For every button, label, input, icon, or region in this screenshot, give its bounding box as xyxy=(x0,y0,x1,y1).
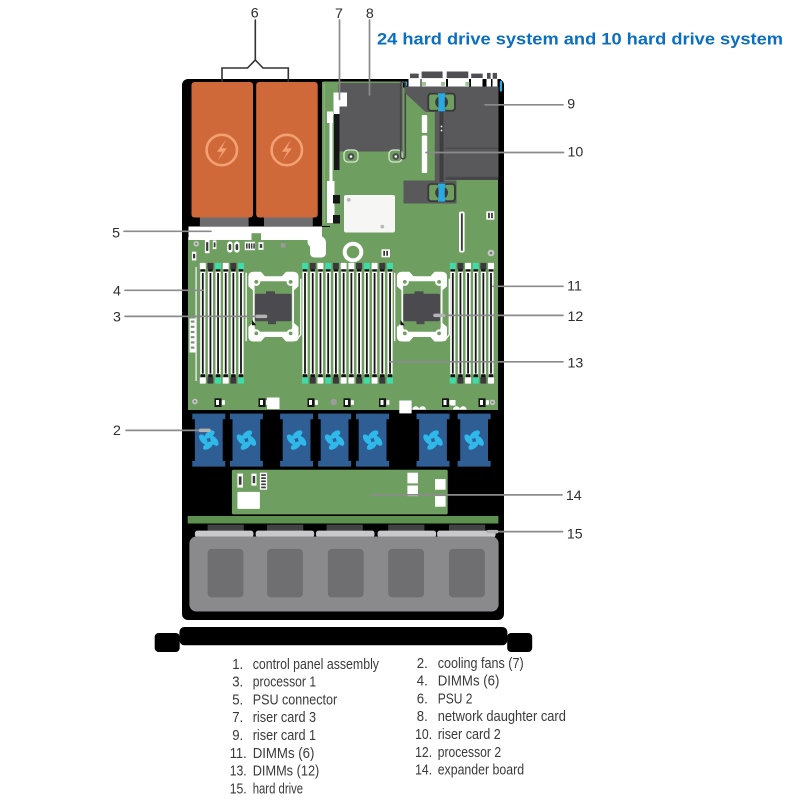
svg-text:9: 9 xyxy=(567,97,575,113)
svg-text:network daughter card: network daughter card xyxy=(438,708,566,725)
svg-text:4: 4 xyxy=(113,284,121,300)
svg-text:11: 11 xyxy=(567,279,582,295)
svg-text:5.: 5. xyxy=(232,691,243,708)
svg-text:cooling fans (7): cooling fans (7) xyxy=(438,655,524,672)
svg-text:processor 2: processor 2 xyxy=(438,744,501,761)
svg-text:DIMMs (6): DIMMs (6) xyxy=(438,673,500,690)
svg-text:riser card 2: riser card 2 xyxy=(438,726,501,743)
svg-text:expander board: expander board xyxy=(438,762,524,779)
svg-text:hard drive: hard drive xyxy=(253,780,303,797)
svg-text:6: 6 xyxy=(251,5,259,21)
svg-text:24 hard drive system and 10 ha: 24 hard drive system and 10 hard drive s… xyxy=(377,30,783,49)
svg-text:PSU connector: PSU connector xyxy=(253,691,338,708)
svg-text:14: 14 xyxy=(566,488,582,504)
svg-text:DIMMs (6): DIMMs (6) xyxy=(253,745,315,762)
svg-text:riser card 1: riser card 1 xyxy=(253,727,316,744)
svg-text:1.: 1. xyxy=(232,656,243,673)
svg-text:2: 2 xyxy=(113,423,121,439)
svg-text:12.: 12. xyxy=(415,744,432,761)
svg-text:5: 5 xyxy=(112,225,120,241)
svg-text:PSU 2: PSU 2 xyxy=(438,690,473,707)
svg-text:9.: 9. xyxy=(232,727,243,744)
svg-text:processor 1: processor 1 xyxy=(253,674,316,691)
svg-text:2.: 2. xyxy=(417,655,428,672)
svg-text:riser card 3: riser card 3 xyxy=(253,709,316,726)
svg-text:3: 3 xyxy=(113,309,121,325)
svg-text:12: 12 xyxy=(568,309,584,325)
svg-text:11.: 11. xyxy=(230,745,247,762)
svg-text:13: 13 xyxy=(568,356,584,372)
svg-text:6.: 6. xyxy=(417,690,428,707)
svg-text:4.: 4. xyxy=(417,673,428,690)
svg-text:control panel assembly: control panel assembly xyxy=(253,656,380,673)
svg-text:15.: 15. xyxy=(230,780,247,797)
svg-text:DIMMs (12): DIMMs (12) xyxy=(253,763,320,780)
svg-text:8.: 8. xyxy=(417,708,428,725)
svg-text:7.: 7. xyxy=(232,709,243,726)
svg-text:10: 10 xyxy=(568,144,584,160)
svg-text:15: 15 xyxy=(567,527,583,543)
svg-text:13.: 13. xyxy=(230,763,247,780)
svg-text:10.: 10. xyxy=(415,726,432,743)
svg-text:3.: 3. xyxy=(232,674,243,691)
svg-text:14.: 14. xyxy=(415,762,432,779)
